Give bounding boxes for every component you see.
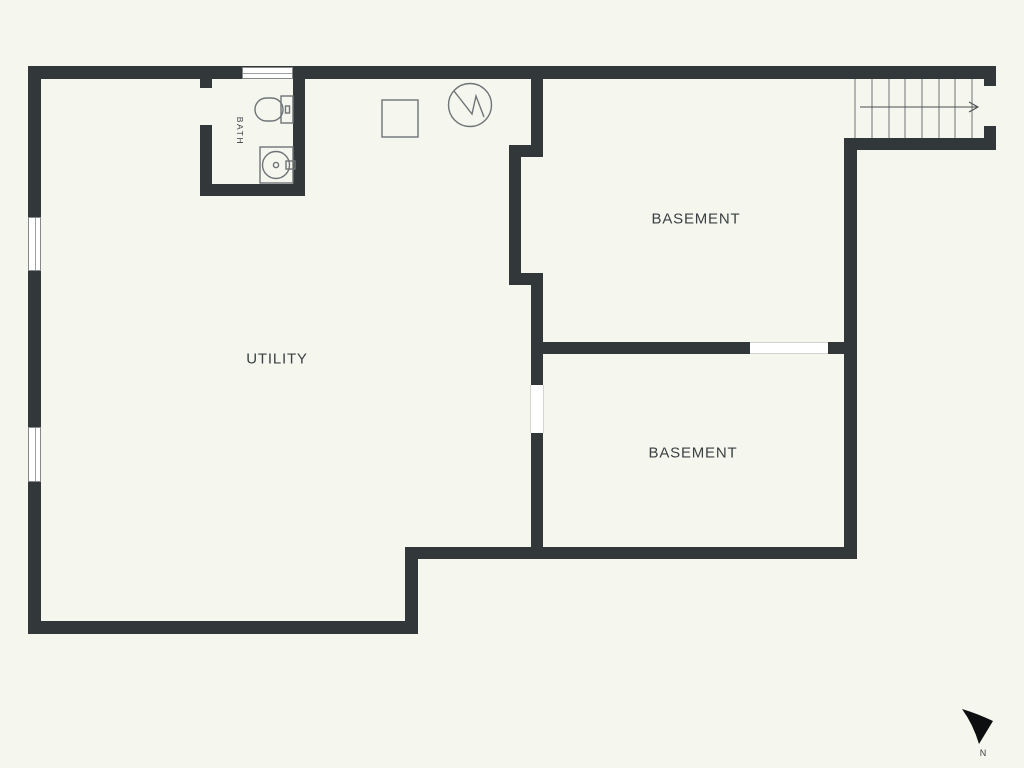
stairs-icon <box>855 79 972 138</box>
fixtures-overlay: N <box>0 0 1024 768</box>
room-label-basement-1: BASEMENT <box>652 211 741 228</box>
room-label-utility: UTILITY <box>246 351 307 368</box>
sink-icon <box>260 147 295 183</box>
north-arrow-icon: N <box>962 709 993 758</box>
window-left-lower <box>28 427 41 482</box>
door-opening-basement-basement <box>750 342 828 354</box>
door-opening-utility-basement <box>530 385 544 433</box>
north-label: N <box>980 748 987 758</box>
toilet-icon <box>255 96 293 123</box>
basement-floor-plan: N UTILITY BASEMENT BASEMENT BATH <box>0 0 1024 768</box>
stairs-direction-arrow-icon <box>860 102 978 112</box>
water-heater-icon <box>449 84 492 127</box>
room-label-basement-2: BASEMENT <box>649 445 738 462</box>
room-label-bath: BATH <box>235 117 245 145</box>
window-left-upper <box>28 217 41 271</box>
window-top-bath <box>242 67 293 79</box>
appliance-square-icon <box>382 100 418 137</box>
